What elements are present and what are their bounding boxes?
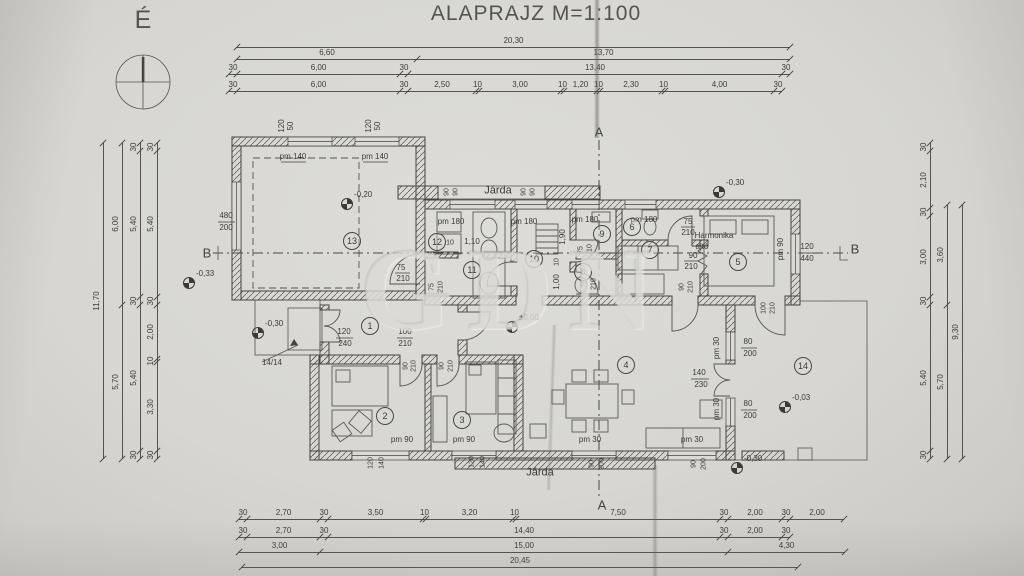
dimension-value: 30 [720, 527, 729, 535]
plan-annotation: 440 [800, 255, 813, 263]
dimension-value: 30 [147, 143, 155, 152]
plan-annotation: 75 [397, 264, 406, 272]
dimension-value: 14,40 [514, 527, 534, 535]
dimension-value: 30 [147, 297, 155, 306]
dimension-line [239, 537, 790, 538]
plan-annotation: pm 30 [713, 398, 721, 420]
plan-annotation: 210 [684, 263, 697, 271]
plan-annotation: 120 [278, 119, 286, 132]
room-number: 11 [463, 261, 481, 279]
level-marker-icon [731, 462, 743, 474]
plan-annotation: pm 90 [391, 436, 413, 444]
dimension-value: 3,00 [272, 542, 288, 550]
plan-annotation: 200 [599, 458, 606, 470]
dimension-value: 10 [510, 509, 519, 517]
plan-annotation: pm 140 [280, 153, 307, 161]
dimension-value: 30 [782, 527, 791, 535]
dimension-value: 30 [920, 143, 928, 152]
plan-annotation: 210 [770, 302, 777, 314]
dimension-line [237, 59, 790, 60]
level-marker-icon [506, 321, 518, 333]
plan-annotation: 120 [337, 328, 350, 336]
dimension-value: 2,50 [434, 81, 450, 89]
dimension-value: 4,00 [712, 81, 728, 89]
level-marker-icon [183, 277, 195, 289]
plan-annotation: 120 [365, 119, 373, 132]
dimension-value: 30 [774, 81, 783, 89]
plan-annotation: 120 [800, 243, 813, 251]
plan-annotation: 1,00 [553, 274, 561, 290]
dimension-value: 30 [920, 297, 928, 306]
dimension-line [962, 205, 963, 459]
dimension-value: 30 [147, 451, 155, 460]
dimension-value: 30 [920, 451, 928, 460]
plan-annotation: 90 [439, 362, 446, 370]
dimension-value: 30 [239, 527, 248, 535]
dimension-line [229, 74, 790, 75]
dimension-value: 5,70 [112, 374, 120, 390]
dimension-value: 10 [594, 81, 603, 89]
dimension-line [140, 143, 141, 459]
plan-annotation: 80 [744, 400, 753, 408]
dimension-value: 30 [320, 509, 329, 517]
level-marker-icon [713, 186, 725, 198]
plan-annotation: 14/14 [262, 359, 282, 367]
dimension-value: 3,20 [462, 509, 478, 517]
dimension-value: 6,00 [311, 81, 327, 89]
dimension-value: 3,30 [147, 399, 155, 415]
dimension-value: 3,00 [920, 249, 928, 265]
section-marker-b-left: B [203, 246, 212, 261]
level-value: ±0,00 [519, 313, 539, 322]
dimension-line [239, 519, 844, 520]
room-number: 7 [641, 241, 659, 259]
plan-annotation: pm 30 [681, 436, 703, 444]
plan-annotation: 90 [691, 460, 698, 468]
plan-annotation: 210 [448, 360, 455, 372]
plan-annotation: 90 [521, 188, 528, 196]
plan-annotation: 75 [429, 283, 436, 291]
plan-annotation: pm 30 [579, 436, 601, 444]
plan-annotation: 210 [398, 340, 411, 348]
north-compass-icon [116, 55, 170, 109]
dimension-value: 5,40 [130, 370, 138, 386]
dimension-value: 30 [320, 527, 329, 535]
dimension-value: 2,70 [276, 509, 292, 517]
plan-annotation: 210 [587, 244, 594, 256]
plan-annotation: 230 [694, 381, 707, 389]
dimension-value: 30 [782, 509, 791, 517]
dimension-line [930, 143, 931, 459]
dimension-line [157, 143, 158, 459]
dimension-value: 5,40 [147, 216, 155, 232]
dimension-value: 2,00 [809, 509, 825, 517]
dimension-value: 9,30 [952, 324, 960, 340]
dimension-line [947, 205, 948, 459]
level-marker-icon [779, 401, 791, 413]
plan-annotation: 210 [438, 281, 445, 293]
dimension-value: 30 [130, 297, 138, 306]
dimension-value: 5,40 [130, 216, 138, 232]
room-number: 9 [593, 225, 611, 243]
plan-annotation: 210 [688, 281, 695, 293]
plan-annotation: pm 90 [777, 238, 785, 260]
plan-annotation: pm 30 [713, 337, 721, 359]
dimension-value: 20,45 [510, 557, 530, 565]
plan-annotation: 1,10 [464, 238, 480, 246]
plan-annotation: 120 [368, 457, 375, 469]
room-number: 5 [729, 253, 747, 271]
dimension-value: 30 [920, 208, 928, 217]
plan-annotation: 10 [554, 258, 561, 266]
room-number: 4 [617, 356, 635, 374]
dimension-value: 6,00 [311, 64, 327, 72]
dimension-value: 3,60 [937, 247, 945, 263]
plan-annotation: 140 [692, 369, 705, 377]
plan-annotation: 1,90 [559, 229, 567, 245]
dimension-value: 11,70 [93, 291, 101, 310]
plan-annotation: 100 [761, 302, 768, 314]
north-label: É [135, 6, 152, 35]
dimension-value: 6,00 [112, 216, 120, 232]
plan-annotation: 90 [530, 188, 537, 196]
dimension-value: 20,30 [503, 37, 523, 45]
dimension-value: 2,70 [276, 527, 292, 535]
dimension-value: 10 [473, 81, 482, 89]
room-number: 12 [428, 233, 446, 251]
plan-annotation: 75 [578, 246, 585, 254]
plan-annotation: 210 [681, 229, 694, 237]
plan-annotation: pm 180 [438, 218, 465, 226]
plan-annotation: 210 [411, 360, 418, 372]
level-value: -0,20 [354, 190, 372, 199]
dimension-value: 10 [147, 356, 155, 365]
dimension-value: 2,00 [747, 509, 763, 517]
plan-annotation: pm 180 [511, 218, 538, 226]
level-marker-icon [252, 327, 264, 339]
plan-annotation: pm 180 [572, 216, 599, 224]
dimension-value: 7,50 [610, 509, 626, 517]
room-number: 13 [343, 232, 361, 250]
plan-annotation: 480 [219, 212, 232, 220]
plan-annotation: 100 [398, 328, 411, 336]
plan-annotation: 210 [591, 278, 598, 290]
section-marker-a-bottom: A [598, 498, 607, 513]
dimension-value: 10 [558, 81, 567, 89]
plan-annotation: ajtó [696, 243, 709, 251]
room-number: 2 [376, 407, 394, 425]
plan-annotation: Járda [526, 468, 554, 479]
dimension-value: 30 [239, 509, 248, 517]
room-number: 6 [623, 218, 641, 236]
scanned-floor-plan-page: 12050pm 14012050pm 14048020075210Járda90… [0, 0, 1024, 576]
level-value: -0,03 [792, 393, 810, 402]
page-title: ALAPRAJZ M=1:100 [431, 2, 641, 26]
dimension-value: 30 [229, 64, 238, 72]
plan-annotation: 200 [701, 458, 708, 470]
level-marker-icon [341, 198, 353, 210]
plan-annotation: 50 [374, 122, 382, 131]
dimension-value: 1,20 [573, 81, 589, 89]
plan-annotation: 75 [684, 218, 693, 226]
level-value: -0,30 [265, 319, 283, 328]
dimension-value: 4,30 [779, 542, 795, 550]
doors [324, 216, 785, 396]
plan-annotation: 200 [743, 412, 756, 420]
section-marker-b-right: B [851, 242, 860, 257]
plan-annotation: Járda [484, 186, 512, 197]
plan-annotation: 120 [469, 456, 476, 468]
dimension-line [239, 552, 845, 553]
dimension-line [122, 143, 123, 459]
dimension-value: 30 [400, 64, 409, 72]
dimension-value: 30 [130, 451, 138, 460]
plan-annotation: Harmonika [695, 232, 734, 240]
plan-annotation: 140 [379, 457, 386, 469]
room-number: 3 [453, 411, 471, 429]
plan-annotation: 240 [338, 340, 351, 348]
section-marker-a-top: A [595, 125, 604, 140]
dimension-line [242, 567, 798, 568]
room-number: 1 [361, 317, 379, 335]
dimension-value: 6,60 [319, 49, 335, 57]
dimension-line [103, 143, 104, 459]
dimension-value: 2,00 [147, 324, 155, 340]
plan-annotation: 200 [219, 224, 232, 232]
level-value: -0,33 [196, 269, 214, 278]
plan-annotation: 90 [589, 460, 596, 468]
plan-annotation: 90 [453, 188, 460, 196]
plan-annotation: 210 [396, 275, 409, 283]
plan-annotation: 75 [582, 280, 589, 288]
level-value: -0,30 [744, 454, 762, 463]
dimension-value: 2,00 [747, 527, 763, 535]
dimension-value: 30 [229, 81, 238, 89]
room-number: 8 [574, 263, 592, 281]
plan-annotation: pm 140 [362, 153, 389, 161]
dimension-value: 13,70 [593, 49, 613, 57]
plan-annotation: 140 [480, 456, 487, 468]
dimension-value: 30 [720, 509, 729, 517]
dimension-value: 5,70 [937, 374, 945, 390]
dimension-value: 10 [420, 509, 429, 517]
plan-annotation: 90 [689, 252, 698, 260]
dimension-value: 3,50 [368, 509, 384, 517]
level-value: -0,30 [726, 178, 744, 187]
plan-annotation: 90 [444, 188, 451, 196]
plan-annotation: 90 [403, 362, 410, 370]
dimension-value: 3,00 [512, 81, 528, 89]
dimension-value: 15,00 [514, 542, 534, 550]
dimension-value: 13,40 [585, 64, 605, 72]
dimension-value: 30 [400, 81, 409, 89]
dimension-value: 30 [130, 143, 138, 152]
room-number: 10 [525, 250, 543, 268]
plan-annotation: 200 [743, 350, 756, 358]
plan-annotation: 80 [744, 338, 753, 346]
dimension-value: 10 [659, 81, 668, 89]
dimension-value: 30 [782, 64, 791, 72]
plan-annotation: 50 [287, 122, 295, 131]
dimension-line [229, 91, 782, 92]
plan-annotation: 90 [679, 283, 686, 291]
dimension-value: 2,10 [920, 172, 928, 188]
room-number: 14 [794, 357, 812, 375]
plan-annotation: 10 [446, 240, 454, 247]
dimension-value: 5,40 [920, 370, 928, 386]
plan-annotation: pm 90 [453, 436, 475, 444]
dimension-value: 2,30 [623, 81, 639, 89]
